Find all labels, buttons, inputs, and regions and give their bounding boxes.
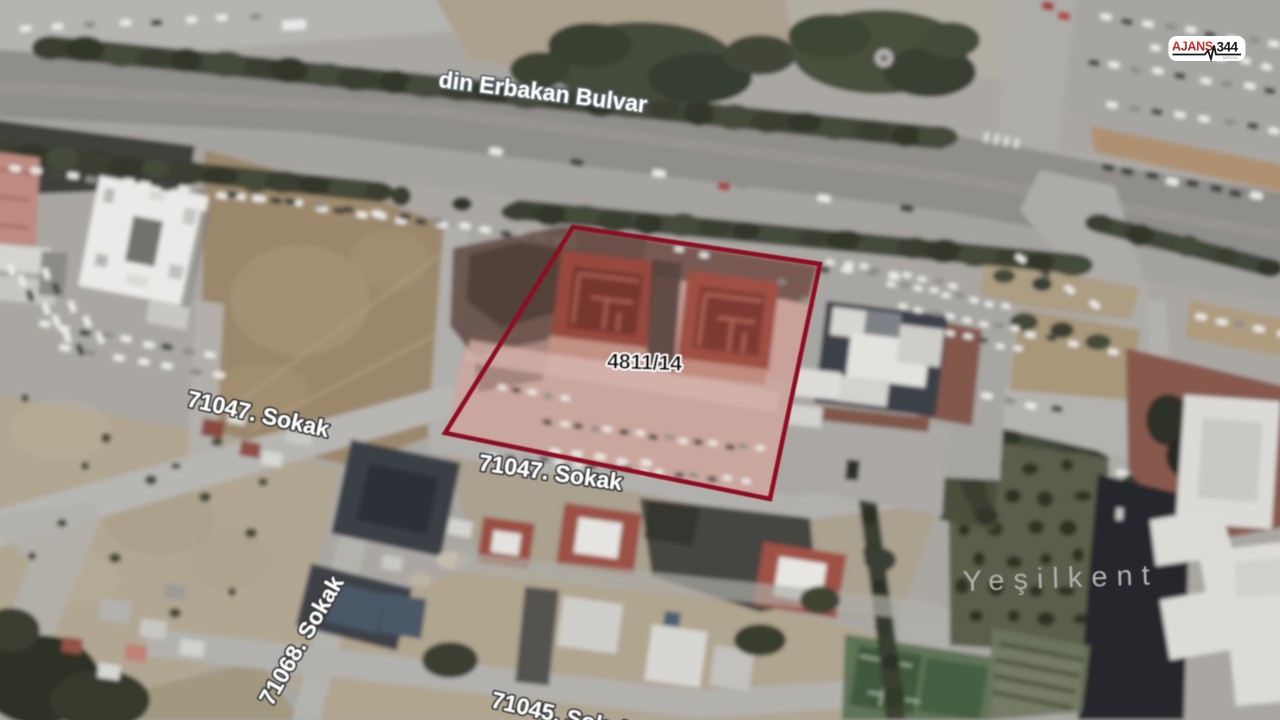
svg-text:MEDYA: MEDYA (1223, 55, 1237, 60)
svg-text:344: 344 (1217, 40, 1239, 55)
svg-text:4811/14: 4811/14 (607, 350, 683, 376)
svg-text:Yeşilkent: Yeşilkent (962, 559, 1159, 598)
